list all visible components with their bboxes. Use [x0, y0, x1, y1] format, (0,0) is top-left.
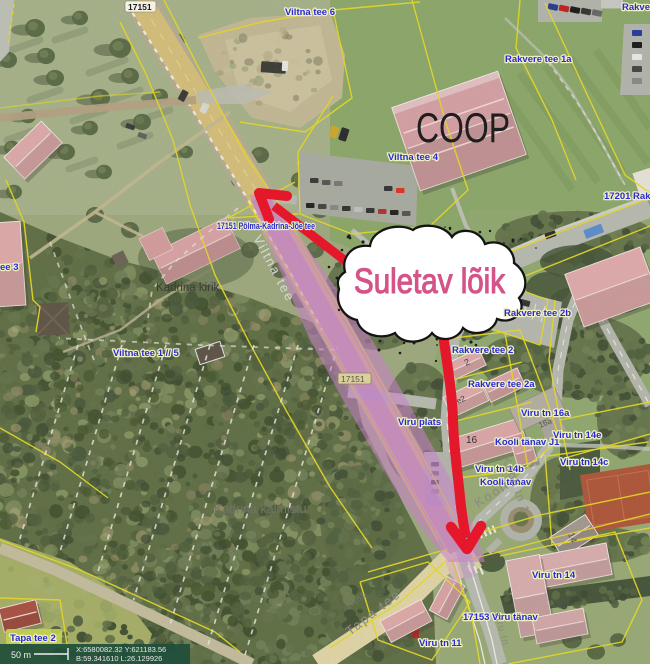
svg-text:Tapa tee 2: Tapa tee 2: [10, 633, 56, 644]
svg-text:X:6580082.32 Y:621183.56: X:6580082.32 Y:621183.56: [76, 645, 166, 654]
svg-text:Rakvere tee 2b: Rakvere tee 2b: [504, 308, 571, 319]
svg-text:17201 Rakv: 17201 Rakv: [604, 191, 650, 202]
svg-text:Viltna tee 6: Viltna tee 6: [285, 7, 335, 18]
svg-text:Viltna tee 1 // 5: Viltna tee 1 // 5: [113, 348, 180, 359]
svg-text:Viru tn 11: Viru tn 11: [419, 638, 462, 649]
svg-text:50 m: 50 m: [11, 650, 31, 660]
svg-text:Viru tn 14c: Viru tn 14c: [560, 457, 608, 468]
svg-text:Suletav lõik: Suletav lõik: [354, 262, 505, 301]
svg-text:17151: 17151: [128, 2, 152, 12]
svg-text:16: 16: [466, 435, 478, 446]
svg-text:Viru plats: Viru plats: [398, 417, 441, 428]
svg-text:Rakvere tee 2: Rakvere tee 2: [452, 345, 513, 356]
svg-text:17151: 17151: [341, 374, 365, 384]
svg-text:Kooli tänav J1: Kooli tänav J1: [495, 437, 560, 448]
svg-text:ee 3: ee 3: [0, 262, 19, 273]
svg-text:Rakvere tee 1a: Rakvere tee 1a: [505, 54, 572, 65]
svg-text:Rakvere tee 2a: Rakvere tee 2a: [468, 379, 535, 390]
svg-text:Viru tn 14e: Viru tn 14e: [553, 430, 601, 441]
svg-text:17151 Põlma-Kadrina-Jõe tee: 17151 Põlma-Kadrina-Jõe tee: [217, 221, 315, 231]
svg-text:Viltna tee 4: Viltna tee 4: [388, 152, 439, 163]
svg-text:Kadrina kirik: Kadrina kirik: [156, 282, 220, 294]
svg-text:COOP: COOP: [416, 104, 510, 151]
svg-text:Kadrina kalmistu: Kadrina kalmistu: [214, 502, 306, 516]
svg-text:B:59.341610 L:26.129926: B:59.341610 L:26.129926: [76, 654, 162, 663]
svg-text:Viru tn 14: Viru tn 14: [532, 570, 576, 581]
svg-text:Rakver: Rakver: [622, 2, 650, 13]
